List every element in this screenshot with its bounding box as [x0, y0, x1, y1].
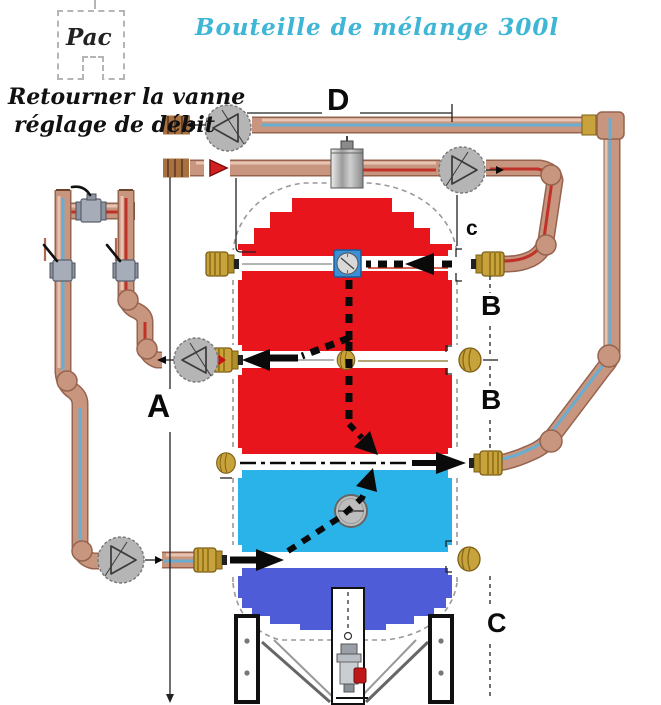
pac-label: Pac — [66, 26, 112, 49]
thermometer-icon — [334, 250, 361, 277]
tank-zone-hot — [238, 198, 452, 454]
brass-fitting-icon — [194, 548, 227, 572]
leg-bolt — [244, 670, 249, 675]
strut-left-2 — [274, 640, 338, 702]
pump-pac-supply-icon — [439, 147, 485, 193]
note-line-2: réglage de débit — [14, 114, 215, 136]
label-dimension-C: C — [487, 610, 507, 637]
leg-bolt — [244, 638, 249, 643]
pump-heating-supply-icon — [174, 338, 218, 382]
diagram-title: Bouteille de mélange 300l — [195, 16, 495, 39]
heating-manifold — [56, 190, 198, 561]
pump-heating-return-icon — [98, 537, 144, 583]
elbow-icon — [540, 430, 562, 452]
strut-left-1 — [262, 642, 330, 702]
elbow-icon — [541, 165, 561, 185]
label-dimension-A: A — [147, 390, 170, 422]
brass-plug-icon — [217, 453, 236, 473]
valve-bridge-icon — [72, 187, 106, 222]
brass-fitting-icon — [206, 252, 239, 276]
label-dimension-D: D — [327, 84, 349, 115]
brass-plug-icon — [458, 547, 480, 571]
strut-right-1 — [366, 642, 428, 702]
label-dimension-B2: B — [481, 386, 501, 414]
note-line-1: Retourner la vanne — [8, 86, 245, 108]
label-dimension-c: c — [466, 218, 478, 239]
leg-bolt — [438, 638, 443, 643]
pac-connection-tick — [94, 0, 96, 9]
dimension-A — [166, 177, 174, 703]
air-vent-icon — [331, 136, 363, 188]
pac-notch — [82, 56, 104, 80]
elbow-icon — [598, 345, 620, 367]
leg-right — [430, 616, 452, 702]
brass-plug-icon — [459, 348, 481, 372]
brass-fitting-icon — [471, 252, 504, 276]
elbow-icon — [536, 235, 556, 255]
brass-coupling-icon — [582, 115, 596, 135]
leg-left — [236, 616, 258, 702]
arrowhead — [155, 556, 163, 564]
brass-fitting-icon — [469, 451, 502, 475]
diagram-page: Pac Bouteille de mélange 300l Retourner … — [0, 0, 661, 705]
leg-bolt — [438, 670, 443, 675]
drain-port — [345, 633, 352, 640]
label-dimension-B1: B — [481, 292, 501, 320]
